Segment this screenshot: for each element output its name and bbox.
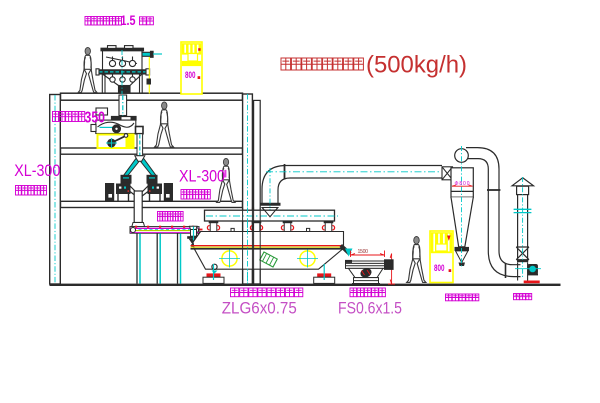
svg-text:FS0.6x1.5: FS0.6x1.5 [338, 300, 402, 318]
svg-text:XL-300: XL-300 [179, 167, 225, 186]
svg-text:1500: 1500 [358, 249, 369, 255]
svg-text:XL-300: XL-300 [14, 161, 60, 180]
svg-text:350: 350 [85, 110, 106, 127]
svg-text:ZLG6x0.75: ZLG6x0.75 [222, 300, 297, 318]
svg-text:Φ800: Φ800 [455, 181, 470, 187]
svg-text:800: 800 [185, 70, 196, 80]
svg-text:(500kg/h): (500kg/h) [366, 52, 467, 79]
svg-text:800: 800 [434, 263, 445, 273]
svg-text:1.5: 1.5 [121, 13, 136, 28]
